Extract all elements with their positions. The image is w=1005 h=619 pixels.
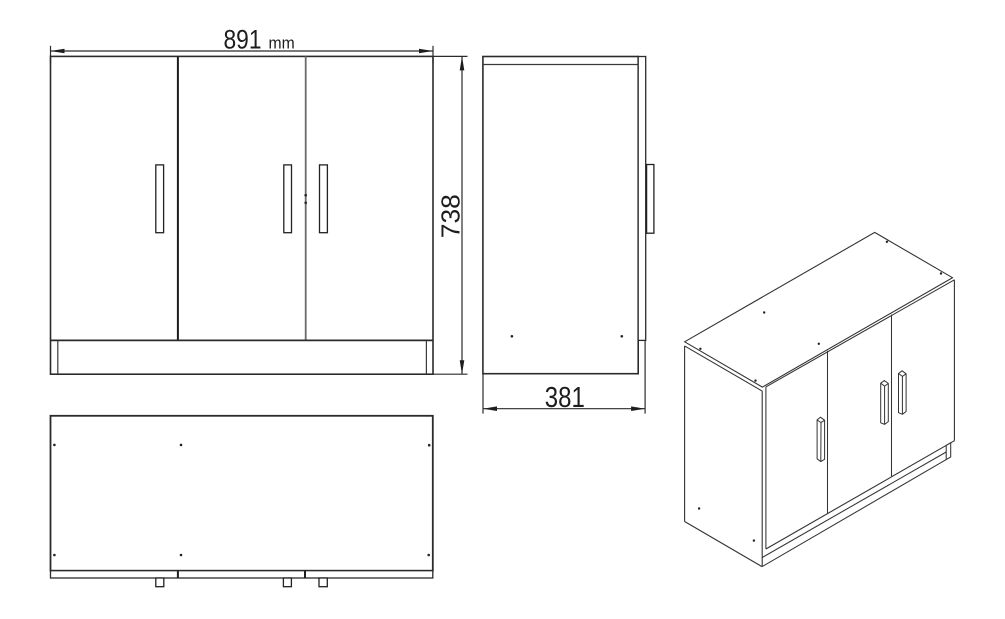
svg-text:891: 891 <box>224 24 262 54</box>
svg-text:mm: mm <box>269 34 295 52</box>
svg-text:381: 381 <box>545 382 585 414</box>
svg-text:738: 738 <box>435 194 465 238</box>
